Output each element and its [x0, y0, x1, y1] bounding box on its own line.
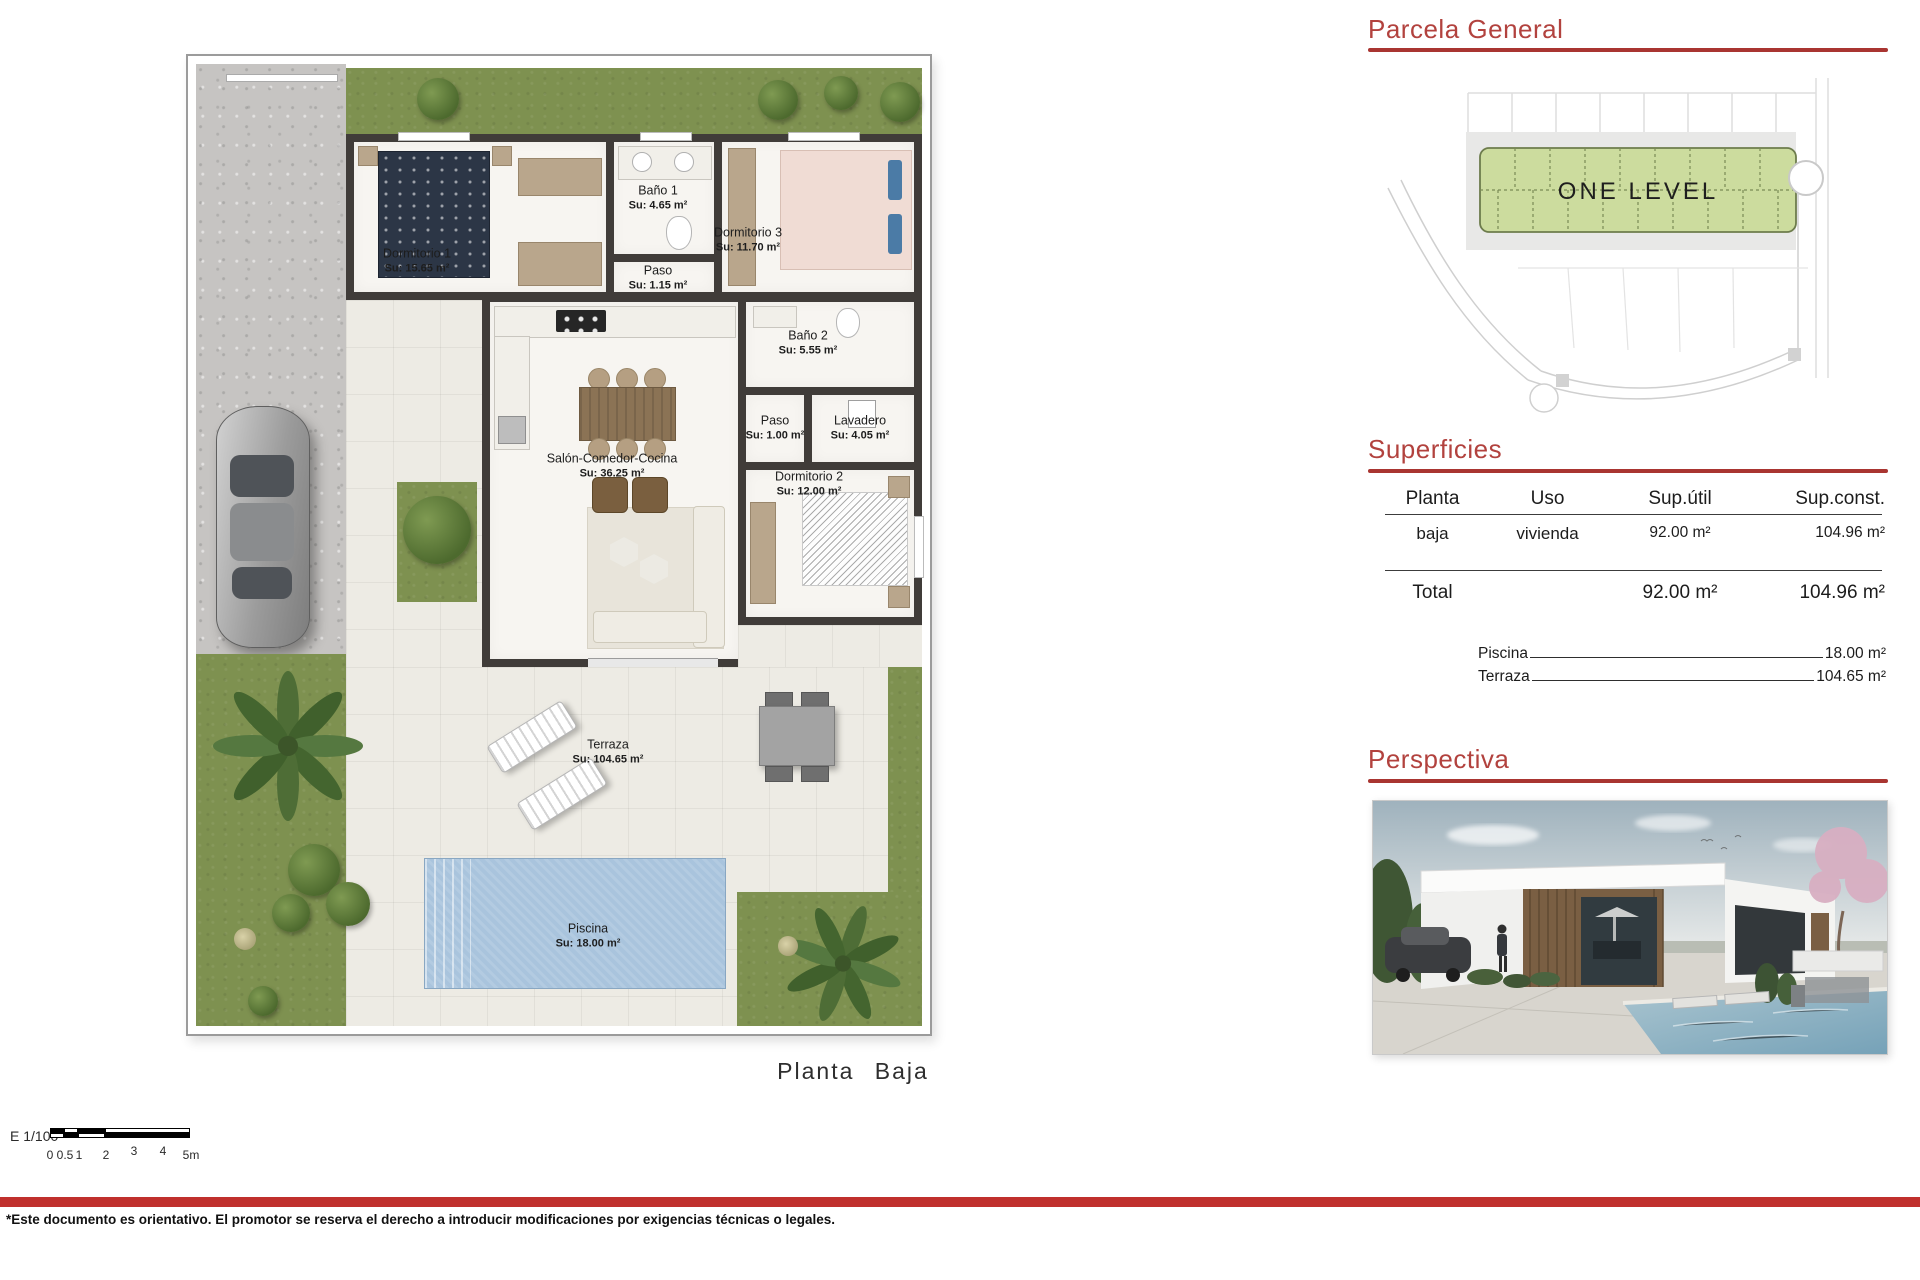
- driveway-gate: [226, 74, 338, 82]
- fridge: [498, 416, 526, 444]
- floor-plan: Dormitorio 1Su: 15.65 m² Baño 1Su: 4.65 …: [186, 54, 932, 1036]
- col-header: Sup.const.: [1745, 488, 1885, 510]
- wardrobe: [518, 158, 602, 196]
- scale-tick: 2: [103, 1148, 110, 1162]
- col-header: Planta: [1385, 488, 1480, 510]
- room-label: Dormitorio 3Su: 11.70 m²: [714, 225, 782, 254]
- car-roof: [230, 503, 294, 561]
- window: [640, 132, 692, 141]
- superficies-total-row: Total 92.00 m² 104.96 m²: [1385, 582, 1885, 604]
- outdoor-dining-set: [759, 702, 833, 772]
- pillow: [888, 160, 902, 200]
- window: [788, 132, 860, 141]
- scale-bar-bottom: [50, 1133, 190, 1138]
- room-label: TerrazaSu: 104.65 m²: [573, 737, 644, 766]
- room-label: Baño 1Su: 4.65 m²: [629, 183, 688, 212]
- pool-steps: [425, 859, 471, 988]
- pillow: [888, 214, 902, 254]
- scale-tick: 0.5: [57, 1148, 74, 1162]
- extra-value: 18.00 m²: [1825, 645, 1886, 663]
- nightstand: [888, 476, 910, 498]
- bush: [417, 78, 459, 120]
- col-header: Sup.útil: [1615, 488, 1745, 510]
- nightstand: [358, 146, 378, 166]
- superficies-title: Superficies: [1368, 434, 1502, 465]
- cell-sup-const: 104.96 m²: [1745, 524, 1885, 544]
- extra-terraza-row: Terraza 104.65 m²: [1478, 668, 1886, 686]
- superficies-data-row: baja vivienda 92.00 m² 104.96 m²: [1385, 524, 1885, 544]
- scale-tick: 4: [160, 1144, 167, 1158]
- room-label: PiscinaSu: 18.00 m²: [556, 921, 621, 950]
- room-label: Dormitorio 2Su: 12.00 m²: [775, 469, 843, 498]
- plan-sheet-page: Dormitorio 1Su: 15.65 m² Baño 1Su: 4.65 …: [0, 0, 1920, 1280]
- car-rear-window: [232, 567, 292, 599]
- plan-title: Planta Baja: [723, 1058, 983, 1085]
- cooktop: [556, 310, 606, 332]
- dining-table: [579, 387, 676, 441]
- kitchen-counter: [494, 306, 736, 338]
- perspectiva-rule: [1368, 779, 1888, 783]
- extra-label: Terraza: [1478, 668, 1530, 686]
- cell-total-sup-const: 104.96 m²: [1745, 582, 1885, 604]
- col-header: Uso: [1480, 488, 1615, 510]
- parcela-title: Parcela General: [1368, 14, 1563, 45]
- bush: [758, 80, 798, 120]
- room-label: Baño 2Su: 5.55 m²: [779, 328, 838, 357]
- sink: [632, 152, 652, 172]
- car-windshield: [230, 455, 294, 497]
- bed-double: [802, 492, 908, 586]
- bush: [272, 894, 310, 932]
- scale-tick: 1: [76, 1148, 83, 1162]
- window: [398, 132, 470, 141]
- planter-tree: [403, 496, 471, 564]
- table-rule: [1385, 570, 1882, 571]
- room-label: Dormitorio 1Su: 15.65 m²: [383, 246, 451, 275]
- room-label: PasoSu: 1.00 m²: [746, 413, 805, 442]
- room-label: LavaderoSu: 4.05 m²: [831, 413, 890, 442]
- nightstand: [492, 146, 512, 166]
- cell-uso: vivienda: [1480, 524, 1615, 544]
- toilet: [666, 216, 692, 250]
- bush: [248, 986, 278, 1016]
- parcela-rule: [1368, 48, 1888, 52]
- parcel-label: ONE LEVEL: [1558, 178, 1718, 205]
- wardrobe: [750, 502, 776, 604]
- palm-tree: [778, 901, 908, 1026]
- wardrobe: [728, 148, 756, 286]
- site-plan: ONE LEVEL: [1368, 58, 1888, 438]
- armchair: [632, 477, 668, 513]
- scale-tick: 0: [47, 1148, 54, 1162]
- footer-divider: [0, 1197, 1920, 1207]
- scale-tick: 3: [131, 1144, 138, 1158]
- garden-strip-right: [888, 667, 922, 892]
- extra-piscina-row: Piscina 18.00 m²: [1478, 645, 1886, 663]
- bush: [326, 882, 370, 926]
- cell-total-sup-util: 92.00 m²: [1615, 582, 1745, 604]
- extra-label: Piscina: [1478, 645, 1528, 663]
- cell-planta: baja: [1385, 524, 1480, 544]
- bush: [880, 82, 920, 122]
- table-rule: [1385, 514, 1882, 515]
- flower-patch: [778, 936, 798, 956]
- room-label: Salón-Comedor-CocinaSu: 36.25 m²: [547, 451, 678, 480]
- cell-total-label: Total: [1385, 582, 1480, 604]
- bathroom-counter: [753, 306, 797, 328]
- sofa: [593, 611, 707, 643]
- car-top-view: [216, 406, 310, 648]
- cell-sup-util: 92.00 m²: [1615, 524, 1745, 544]
- sink: [674, 152, 694, 172]
- bush: [824, 76, 858, 110]
- scale-tick: 5m: [183, 1148, 200, 1162]
- superficies-header-row: Planta Uso Sup.útil Sup.const.: [1385, 488, 1885, 510]
- room-label: PasoSu: 1.15 m²: [629, 263, 688, 292]
- perspective-render: [1372, 800, 1888, 1055]
- toilet: [836, 308, 860, 338]
- perspectiva-title: Perspectiva: [1368, 744, 1509, 775]
- flower-patch: [234, 928, 256, 950]
- window: [914, 516, 924, 578]
- palm-tree: [208, 671, 368, 821]
- disclaimer-text: *Este documento es orientativo. El promo…: [6, 1212, 835, 1227]
- nightstand: [888, 586, 910, 608]
- extra-value: 104.65 m²: [1816, 668, 1886, 686]
- wardrobe: [518, 242, 602, 286]
- terrace-tiles: [738, 625, 922, 667]
- superficies-rule: [1368, 469, 1888, 473]
- armchair: [592, 477, 628, 513]
